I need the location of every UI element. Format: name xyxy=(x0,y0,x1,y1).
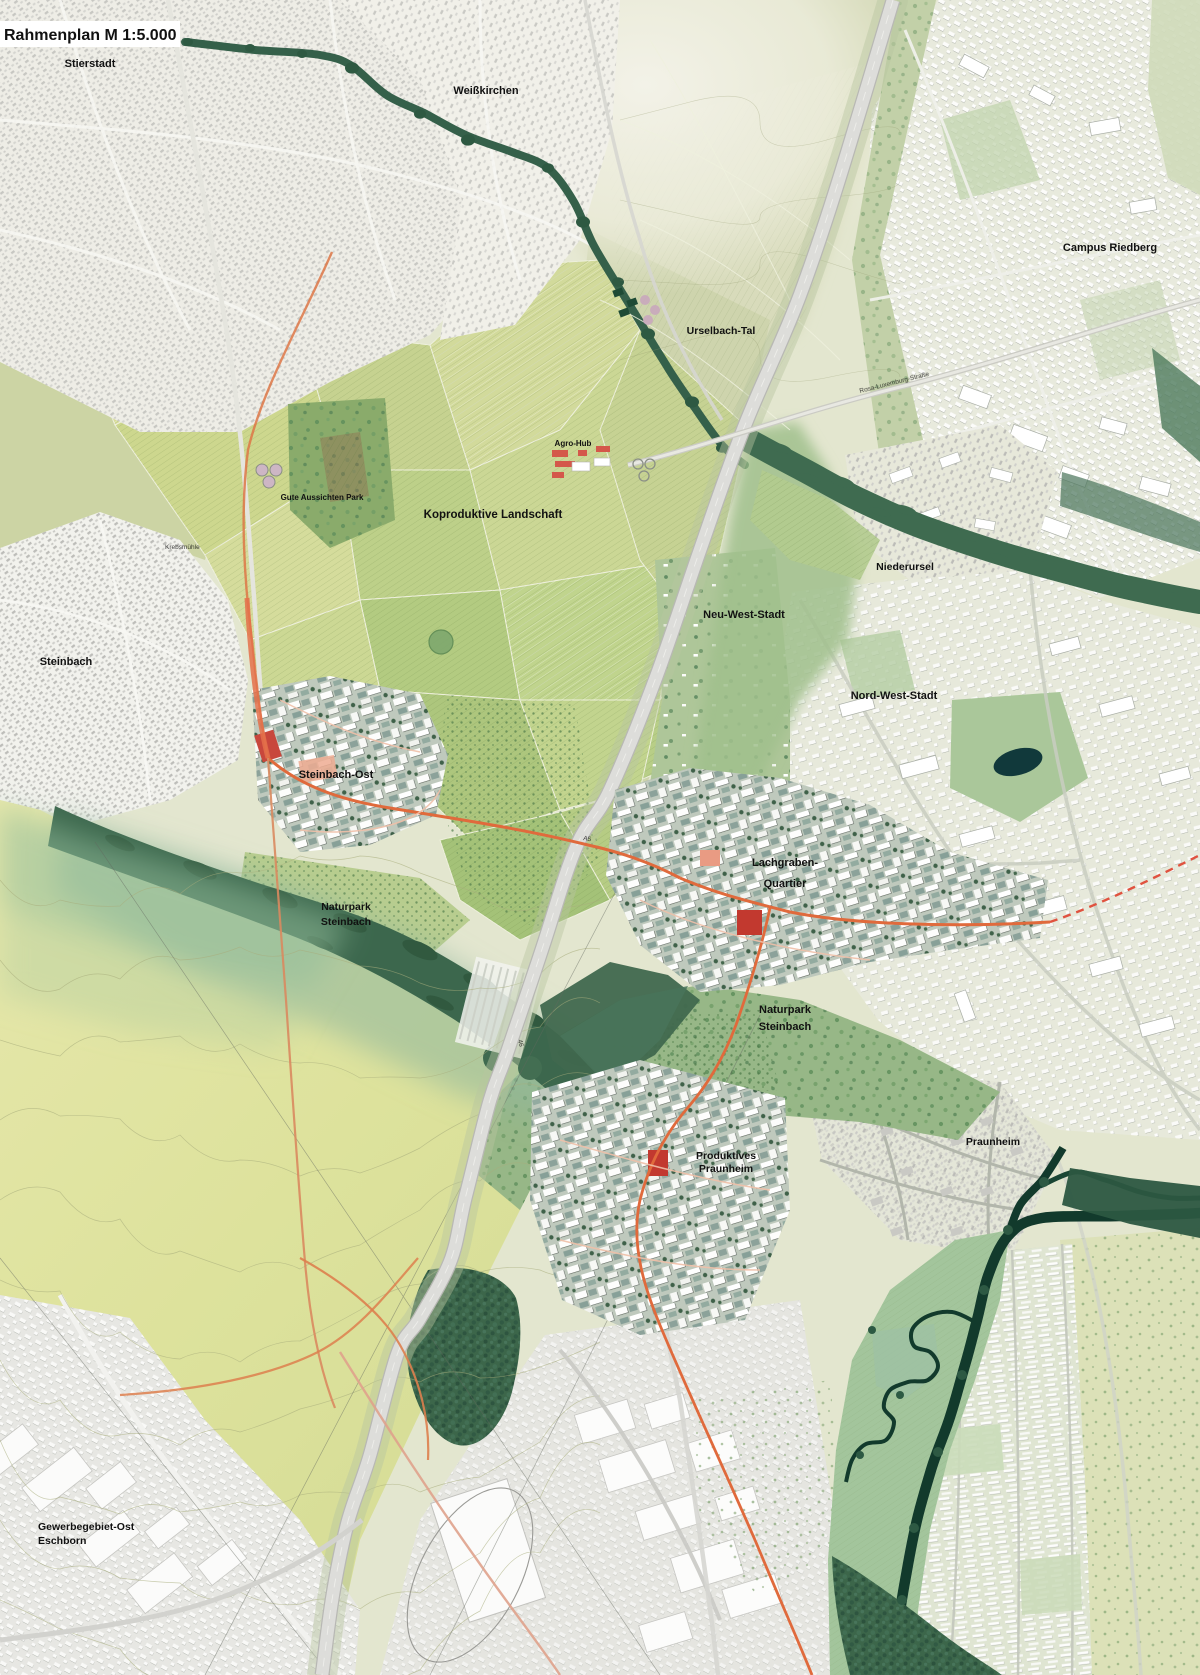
svg-text:Niederursel: Niederursel xyxy=(876,561,934,573)
svg-text:Agro-Hub: Agro-Hub xyxy=(555,439,592,448)
svg-text:Produktives: Produktives xyxy=(696,1150,756,1162)
svg-text:Quartier: Quartier xyxy=(764,878,808,890)
svg-text:Steinbach: Steinbach xyxy=(321,916,371,928)
svg-text:Praunheim: Praunheim xyxy=(699,1163,753,1175)
svg-text:Weißkirchen: Weißkirchen xyxy=(453,85,518,97)
svg-text:Eschborn: Eschborn xyxy=(38,1535,86,1547)
svg-text:Gute Aussichten Park: Gute Aussichten Park xyxy=(281,493,364,502)
svg-text:Steinbach: Steinbach xyxy=(759,1021,812,1033)
svg-text:Lachgraben-: Lachgraben- xyxy=(752,857,818,869)
svg-text:Krebsmühle: Krebsmühle xyxy=(165,544,200,551)
svg-text:Nord-West-Stadt: Nord-West-Stadt xyxy=(851,690,938,702)
svg-text:A5: A5 xyxy=(583,835,592,843)
svg-text:Praunheim: Praunheim xyxy=(966,1136,1020,1148)
svg-text:Steinbach: Steinbach xyxy=(40,656,93,668)
svg-text:Neu-West-Stadt: Neu-West-Stadt xyxy=(703,609,785,621)
svg-text:Gewerbegebiet-Ost: Gewerbegebiet-Ost xyxy=(38,1521,135,1533)
svg-text:Naturpark: Naturpark xyxy=(321,901,371,913)
svg-text:Rahmenplan M 1:5.000: Rahmenplan M 1:5.000 xyxy=(4,27,177,44)
svg-text:Stierstadt: Stierstadt xyxy=(65,58,116,70)
svg-text:Naturpark: Naturpark xyxy=(759,1004,812,1016)
svg-text:Koproduktive Landschaft: Koproduktive Landschaft xyxy=(424,509,563,521)
svg-text:Urselbach-Tal: Urselbach-Tal xyxy=(687,325,756,337)
svg-text:Campus Riedberg: Campus Riedberg xyxy=(1063,242,1157,254)
svg-text:Steinbach-Ost: Steinbach-Ost xyxy=(299,769,374,781)
